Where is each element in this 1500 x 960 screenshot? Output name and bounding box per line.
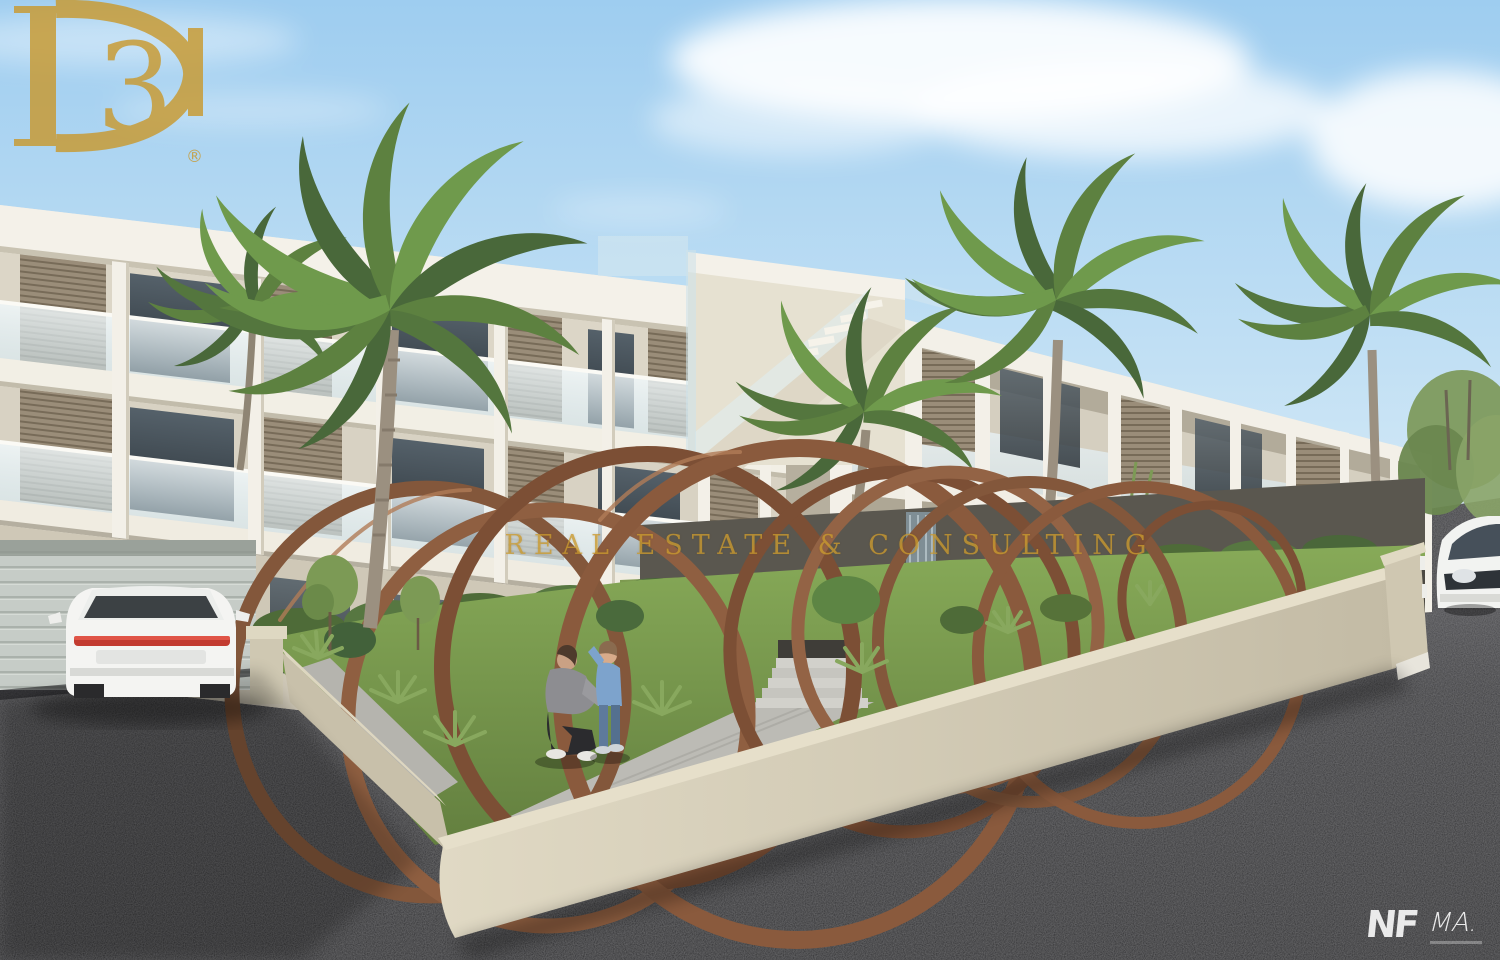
- architect-logo: MA.: [1427, 910, 1482, 936]
- architectural-render-scene: 3 ® REAL ESTATE & CONSULTING NF MA.: [0, 0, 1500, 960]
- white-suv: [48, 586, 250, 698]
- render-canvas: [0, 0, 1500, 960]
- credit-logos: NF MA.: [1366, 906, 1482, 944]
- architect-logo-subtext: [1430, 941, 1482, 944]
- developer-logo: NF: [1364, 906, 1418, 943]
